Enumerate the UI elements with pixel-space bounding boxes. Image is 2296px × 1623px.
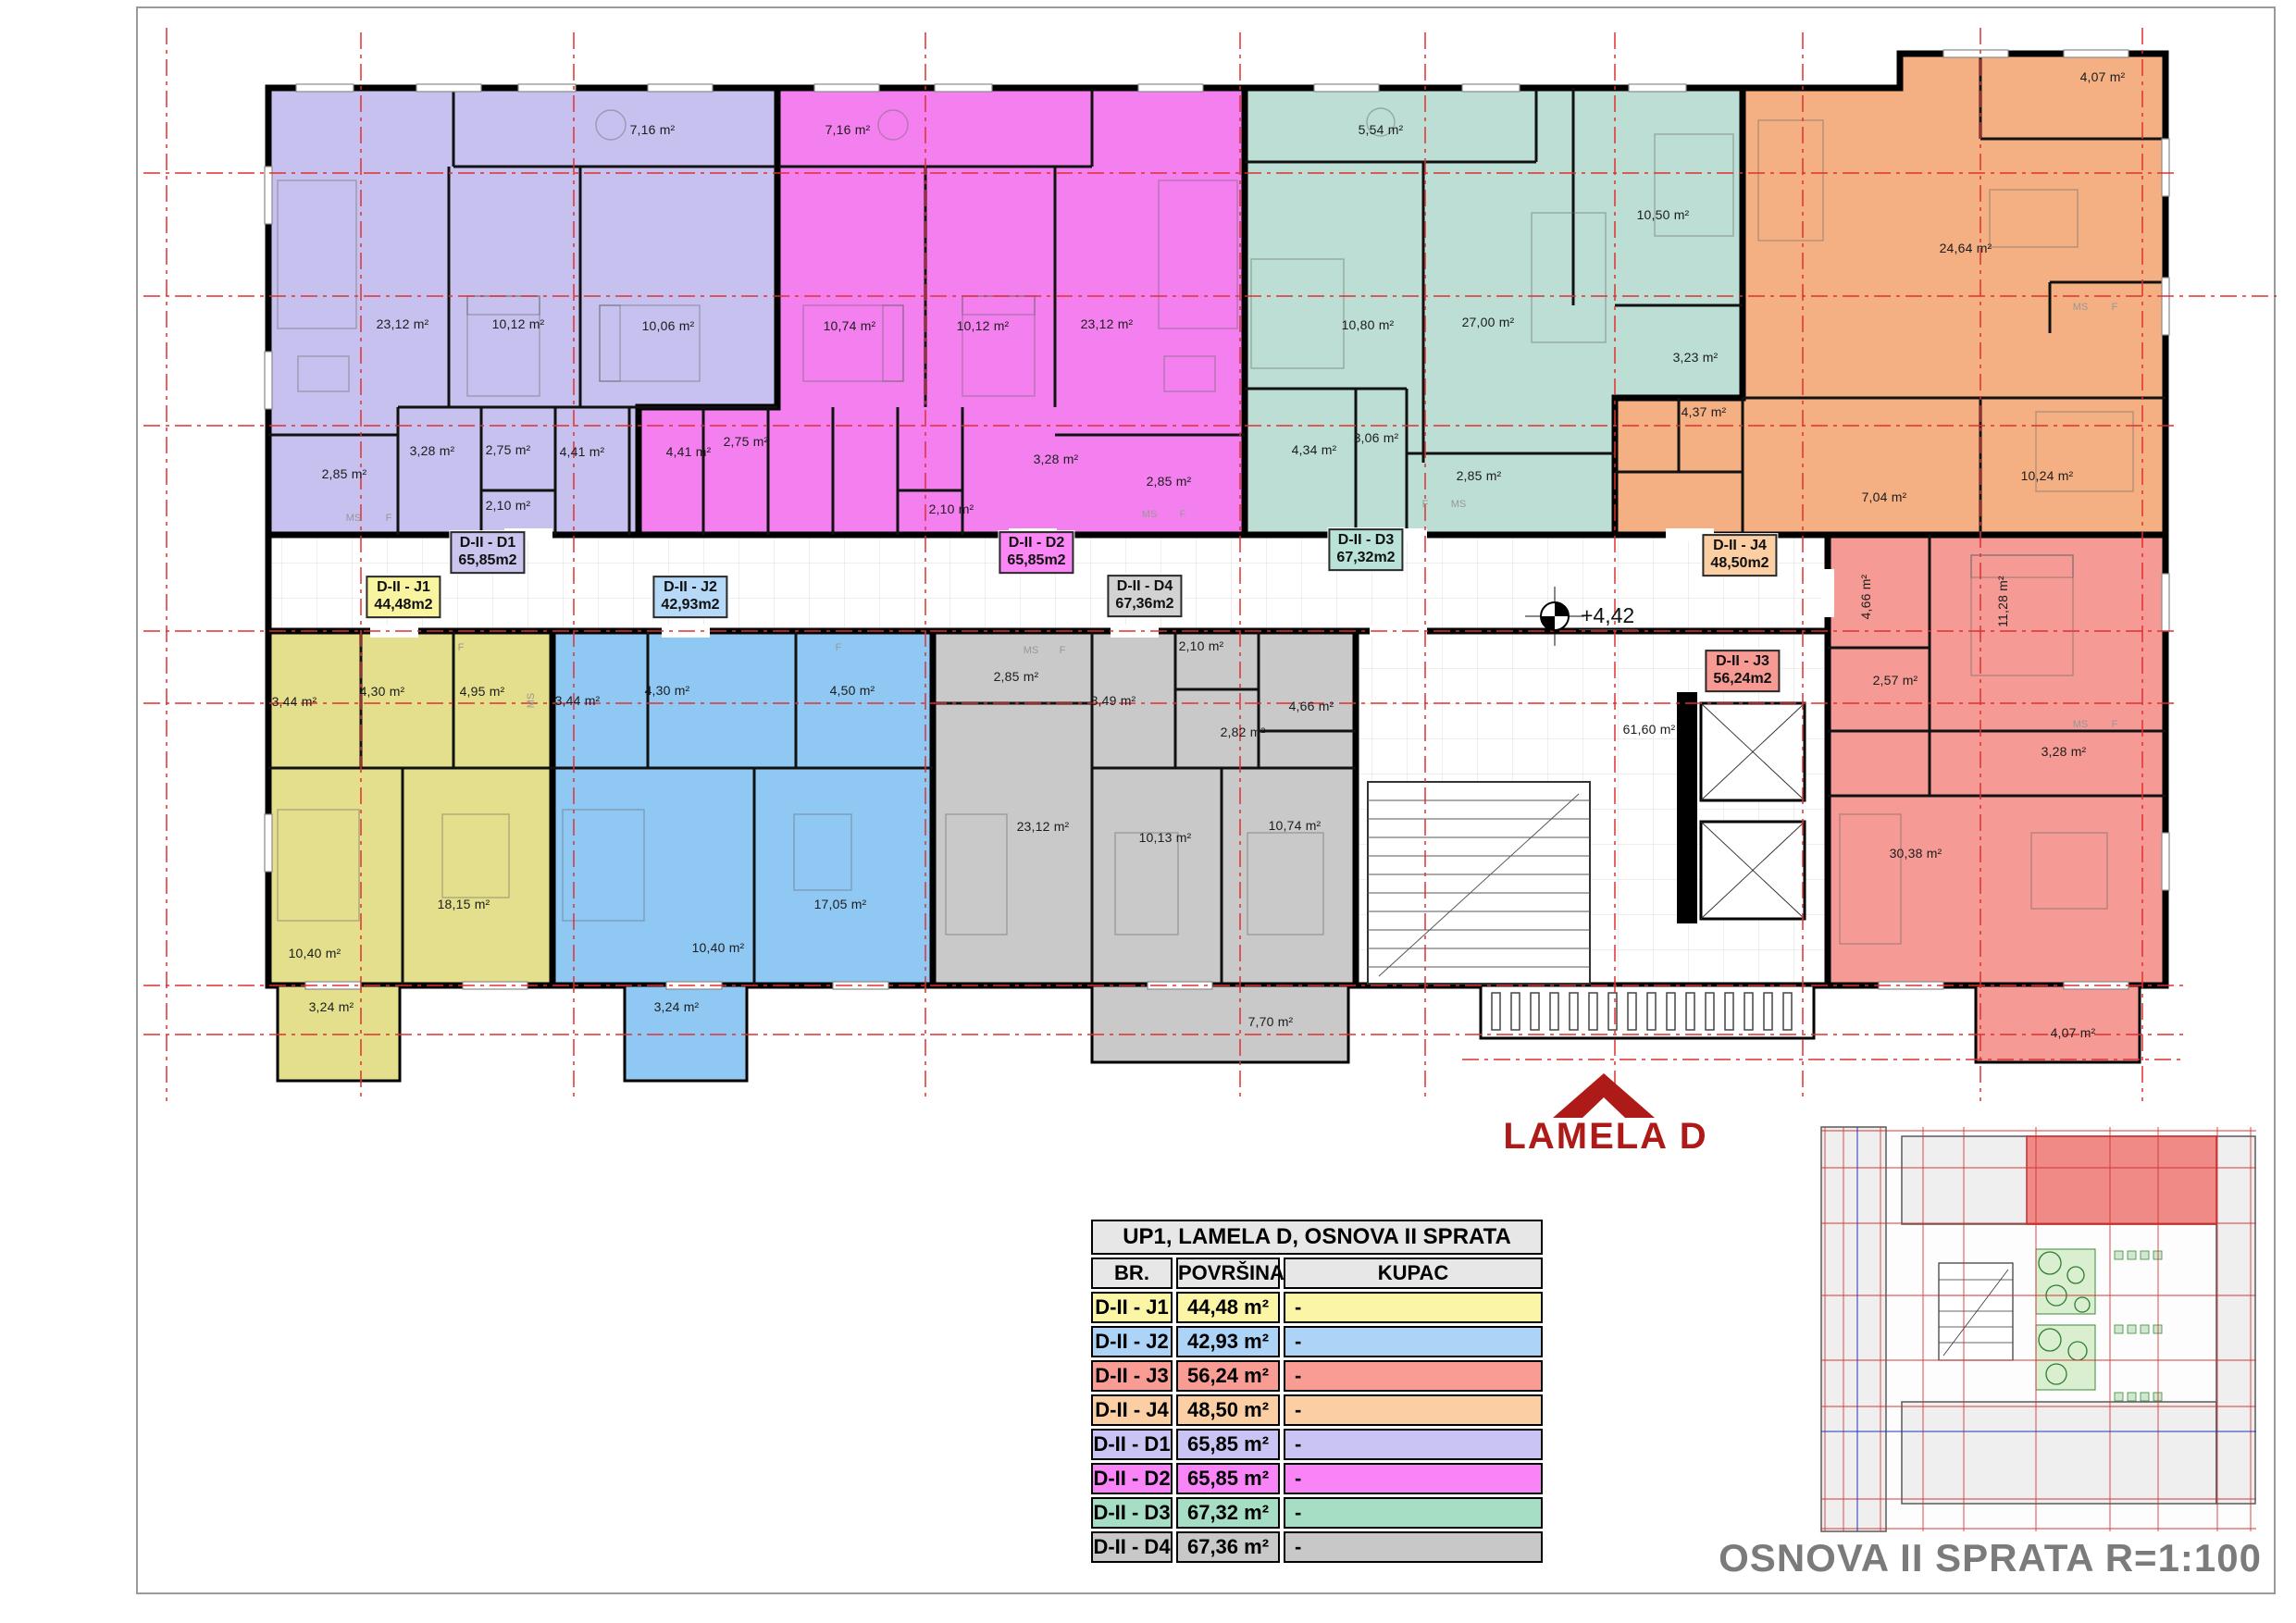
unit-summary-table: UP1, LAMELA D, OSNOVA II SPRATA BR. POVR… (1091, 1220, 1543, 1563)
room-area-label: 2,10 m² (1179, 638, 1224, 653)
room-area-label: 3,44 m² (555, 693, 601, 708)
unit-id-cell: D-II - D3 (1091, 1497, 1173, 1529)
unit-badge-id: D-II - D4 (1115, 578, 1173, 596)
room-area-label: 4,41 m² (560, 444, 605, 459)
kitchen-appliance-label: MS (346, 513, 362, 524)
column-header-kupac: KUPAC (1284, 1258, 1543, 1289)
room-area-label: 4,07 m² (2051, 1025, 2096, 1040)
buyer-cell: - (1284, 1394, 1543, 1426)
kitchen-appliance-label: MS (2073, 719, 2089, 730)
room-area-label: 2,85 m² (322, 466, 367, 481)
site-plan-stairs (1939, 1263, 2013, 1360)
unit-badge: D-II - D367,32m2 (1328, 528, 1403, 571)
room-area-label: 10,06 m² (642, 318, 695, 333)
room-area-label: 2,10 m² (929, 502, 974, 516)
room-area-label: 2,75 m² (486, 442, 531, 457)
table-header-row: BR. POVRŠINA KUPAC (1091, 1258, 1543, 1289)
drawing-sheet: { "sheet": { "drawing_title": "OSNOVA II… (0, 0, 2296, 1623)
room-area-label: 7,04 m² (1862, 489, 1907, 504)
area-cell: 42,93 m² (1176, 1326, 1280, 1357)
kitchen-appliance-label: MS (1451, 499, 1467, 510)
unit-badge-area: 44,48m2 (374, 597, 432, 614)
area-cell: 65,85 m² (1176, 1463, 1280, 1494)
room-area-label: 3,06 m² (1354, 430, 1399, 445)
unit-badge-id: D-II - D3 (1336, 532, 1395, 550)
kitchen-appliance-label: F (458, 642, 465, 653)
table-row: D-II - J4 48,50 m² - (1091, 1394, 1543, 1426)
unit-id-cell: D-II - D2 (1091, 1463, 1173, 1494)
unit-badge-area: 42,93m2 (661, 597, 719, 614)
buyer-cell: - (1284, 1429, 1543, 1460)
room-area-label: 3,24 m² (654, 999, 700, 1014)
room-area-label: 4,34 m² (1292, 442, 1337, 457)
kitchen-appliance-label: MS (2073, 302, 2089, 313)
room-area-label: 7,70 m² (1248, 1014, 1294, 1029)
unit-badge-id: D-II - J3 (1713, 653, 1771, 671)
unit-badge-area: 56,24m2 (1713, 671, 1771, 688)
unit-badge-area: 65,85m2 (458, 552, 516, 570)
room-area-label: 2,85 m² (994, 669, 1039, 684)
buyer-cell: - (1284, 1360, 1543, 1392)
kitchen-appliance-label: MS (526, 693, 537, 709)
room-area-label: 17,05 m² (814, 897, 867, 911)
unit-id-cell: D-II - J4 (1091, 1394, 1173, 1426)
lamela-roof-icon (1553, 1073, 1655, 1118)
table-row: D-II - J1 44,48 m² - (1091, 1292, 1543, 1323)
unit-id-cell: D-II - J3 (1091, 1360, 1173, 1392)
apartment-j1 (268, 631, 552, 985)
unit-badge: D-II - J448,50m2 (1702, 534, 1777, 576)
room-area-label: 10,12 m² (957, 318, 1010, 333)
room-area-label: 4,30 m² (360, 684, 405, 699)
room-area-label: 4,66 m² (1289, 699, 1334, 713)
table-row: D-II - D4 67,36 m² - (1091, 1531, 1543, 1563)
table-row: D-II - J3 56,24 m² - (1091, 1360, 1543, 1392)
unit-id-cell: D-II - J2 (1091, 1326, 1173, 1357)
room-area-label: 10,74 m² (1269, 818, 1322, 833)
unit-badge: D-II - D165,85m2 (450, 531, 525, 574)
room-area-label: 10,24 m² (2021, 468, 2074, 483)
room-area-label: 2,85 m² (1147, 474, 1192, 489)
unit-badge-area: 65,85m2 (1007, 552, 1065, 570)
room-area-label: 7,16 m² (825, 122, 871, 137)
room-area-label: 24,64 m² (1940, 241, 1992, 255)
room-area-label: 3,49 m² (1091, 693, 1136, 708)
room-area-label: 23,12 m² (1081, 316, 1134, 331)
kitchen-appliance-label: F (2112, 302, 2118, 313)
buyer-cell: - (1284, 1292, 1543, 1323)
unit-id-cell: D-II - D4 (1091, 1531, 1173, 1563)
room-area-label: 3,44 m² (272, 694, 317, 709)
room-area-label: 18,15 m² (438, 897, 490, 911)
buyer-cell: - (1284, 1497, 1543, 1529)
lamela-d-label: LAMELA D (1503, 1116, 1707, 1158)
level-marker-label: +4,42 (1579, 603, 1638, 630)
kitchen-appliance-label: F (1422, 499, 1429, 510)
staircase (1368, 782, 1590, 984)
room-area-label: 23,12 m² (1017, 819, 1070, 834)
table-row: D-II - D1 65,85 m² - (1091, 1429, 1543, 1460)
room-area-label: 23,12 m² (377, 316, 429, 331)
room-area-label: 2,57 m² (1873, 673, 1918, 688)
room-area-label: 3,28 m² (410, 443, 455, 458)
room-area-label: 4,95 m² (460, 684, 505, 699)
room-area-label: 10,80 m² (1342, 317, 1395, 332)
column-header-povrsina: POVRŠINA (1176, 1258, 1280, 1289)
kitchen-appliance-label: F (386, 513, 392, 524)
table-row: D-II - J2 42,93 m² - (1091, 1326, 1543, 1357)
room-area-label: 2,10 m² (486, 498, 531, 513)
room-area-label: 3,24 m² (309, 999, 354, 1014)
room-area-label: 4,41 m² (666, 444, 712, 459)
apartments (268, 54, 2166, 985)
unit-badge-area: 48,50m2 (1710, 555, 1769, 573)
room-area-label: 30,38 m² (1890, 846, 1942, 861)
unit-badge: D-II - J242,93m2 (652, 576, 727, 618)
table-title: UP1, LAMELA D, OSNOVA II SPRATA (1091, 1220, 1543, 1255)
buyer-cell: - (1284, 1326, 1543, 1357)
unit-id-cell: D-II - D1 (1091, 1429, 1173, 1460)
unit-badge-id: D-II - D2 (1007, 535, 1065, 552)
room-area-label: 10,12 m² (492, 316, 545, 331)
room-area-label: 5,54 m² (1359, 122, 1404, 137)
room-area-label: 4,07 m² (2080, 69, 2126, 84)
area-cell: 48,50 m² (1176, 1394, 1280, 1426)
area-cell: 67,36 m² (1176, 1531, 1280, 1563)
unit-badge-id: D-II - J2 (661, 579, 719, 597)
kitchen-appliance-label: F (1060, 645, 1066, 656)
balcony-railing (1481, 985, 1814, 1038)
area-cell: 67,32 m² (1176, 1497, 1280, 1529)
apartment-j2 (552, 631, 933, 985)
unit-badge: D-II - D265,85m2 (999, 531, 1074, 574)
room-area-label: 4,66 m² (1858, 575, 1873, 620)
unit-badge-area: 67,36m2 (1115, 596, 1173, 613)
unit-badge-id: D-II - J4 (1710, 538, 1769, 555)
room-area-label: 2,85 m² (1457, 468, 1502, 483)
site-plan-lamela-d-highlight (2027, 1136, 2216, 1224)
buyer-cell: - (1284, 1531, 1543, 1563)
room-area-label: 7,16 m² (630, 122, 676, 137)
kitchen-appliance-label: F (2112, 719, 2118, 730)
kitchen-appliance-label: F (1180, 509, 1186, 520)
room-area-label: 3,23 m² (1673, 350, 1719, 365)
site-plan-thumbnail (1818, 1124, 2258, 1536)
room-area-label: 3,28 m² (1034, 452, 1079, 466)
room-area-label: 10,40 m² (289, 946, 341, 960)
apartment-d4 (933, 631, 1356, 985)
room-area-label: 4,37 m² (1682, 404, 1727, 419)
column-header-br: BR. (1091, 1258, 1173, 1289)
area-cell: 65,85 m² (1176, 1429, 1280, 1460)
unit-badge: D-II - J356,24m2 (1705, 650, 1780, 692)
room-area-label: 2,82 m² (1221, 725, 1266, 739)
room-area-label: 10,13 m² (1139, 830, 1192, 845)
room-area-label: 27,00 m² (1462, 315, 1515, 329)
room-area-label: 10,40 m² (692, 940, 745, 955)
area-cell: 44,48 m² (1176, 1292, 1280, 1323)
room-area-label: 61,60 m² (1623, 722, 1676, 737)
room-area-label: 4,50 m² (830, 683, 875, 698)
table-row: D-II - D3 67,32 m² - (1091, 1497, 1543, 1529)
room-area-label: 11,28 m² (1995, 576, 2010, 627)
unit-badge: D-II - J144,48m2 (366, 576, 441, 618)
terraces (278, 985, 2140, 1081)
kitchen-appliance-label: MS (1024, 645, 1039, 656)
unit-badge: D-II - D467,36m2 (1107, 575, 1182, 617)
kitchen-appliance-label: F (836, 642, 842, 653)
sheet-title: OSNOVA II SPRATA R=1:100 (1544, 1536, 2262, 1580)
unit-badge-id: D-II - J1 (374, 579, 432, 597)
room-area-label: 10,74 m² (824, 318, 876, 333)
table-row: D-II - D2 65,85 m² - (1091, 1463, 1543, 1494)
room-area-label: 4,30 m² (645, 683, 690, 698)
room-area-label: 10,50 m² (1637, 207, 1690, 222)
unit-badge-area: 67,32m2 (1336, 550, 1395, 567)
room-area-label: 2,75 m² (724, 434, 769, 449)
buyer-cell: - (1284, 1463, 1543, 1494)
area-cell: 56,24 m² (1176, 1360, 1280, 1392)
unit-id-cell: D-II - J1 (1091, 1292, 1173, 1323)
kitchen-appliance-label: MS (1142, 509, 1158, 520)
unit-badge-id: D-II - D1 (458, 535, 516, 552)
room-area-label: 3,28 m² (2042, 744, 2087, 759)
